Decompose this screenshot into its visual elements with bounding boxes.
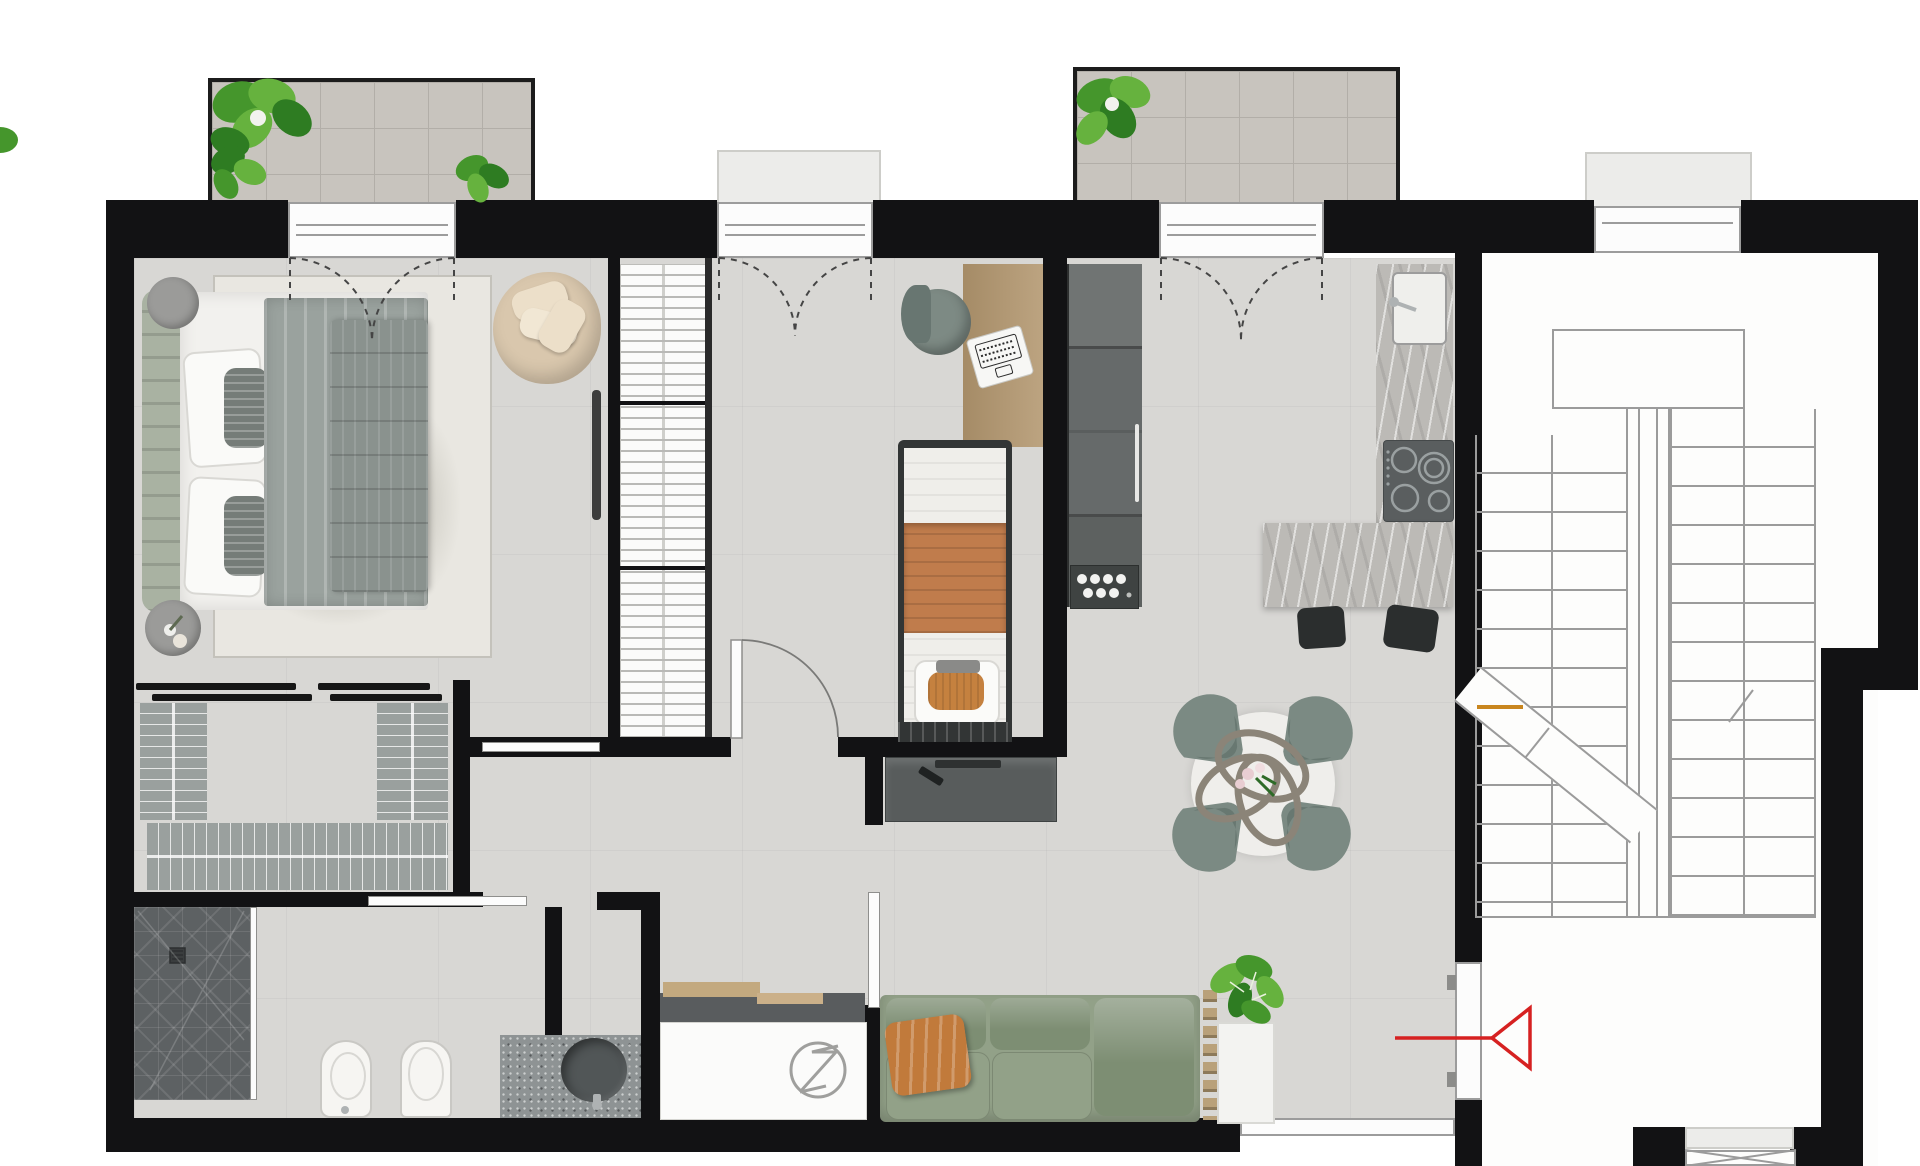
bed-headboard	[142, 290, 182, 612]
kitchen-island	[1263, 523, 1453, 607]
nightstand-top	[147, 277, 199, 329]
sofa-throw-orange	[883, 1013, 973, 1097]
single-bed-blanket	[904, 523, 1006, 633]
balcony-left	[208, 78, 535, 212]
tech-wood-shelf-1	[663, 982, 760, 997]
entrance-door-hinge-bottom	[1447, 1072, 1456, 1087]
stair-stringer-rail-2	[1656, 409, 1670, 918]
closet-rail-right-1	[318, 683, 430, 690]
bottom-wall	[106, 1118, 1240, 1152]
top-wall-seg3	[873, 200, 1159, 258]
bedroom-window-mullion2	[296, 234, 448, 236]
cabinet-handle	[1135, 424, 1139, 502]
bathroom-right-stub	[545, 907, 562, 1035]
vanity-basin	[561, 1038, 627, 1102]
nightstand-bottom	[145, 600, 201, 656]
closet-rail-right-2	[330, 694, 442, 701]
sofa-back-cushion-3	[1094, 998, 1194, 1116]
kitchen-divider-wall	[1043, 258, 1067, 757]
bar-stool-1	[1297, 605, 1347, 649]
shower-glass	[250, 907, 257, 1100]
closet-rail-left-1	[136, 683, 296, 690]
bar-stool-2	[1382, 604, 1439, 654]
kitchen-window-mullion	[1167, 224, 1316, 226]
middle-window-mullion	[725, 224, 865, 226]
entrance-door-hinge-top	[1447, 975, 1456, 990]
sofa-back-cushion-2	[990, 998, 1090, 1050]
boiler-unit	[660, 1022, 867, 1120]
wine-rack-cube	[1070, 565, 1139, 609]
stair-landing-outline	[1552, 329, 1745, 409]
window-platform-stair	[1585, 152, 1752, 212]
shower-tray	[134, 907, 250, 1100]
desk	[963, 264, 1043, 447]
stair-bottom-sill	[1685, 1127, 1794, 1149]
tech-wood-shelf-2	[757, 993, 823, 1004]
wardrobe-hanger-column	[620, 264, 707, 739]
planter-box	[1217, 1022, 1275, 1124]
wardrobe-divider-2	[620, 566, 705, 570]
kitchen-window	[1159, 202, 1324, 258]
wardrobe-divider-1	[620, 401, 705, 405]
closet-hangers-right	[377, 703, 448, 820]
dining-table	[1191, 712, 1335, 856]
stair-step-wall	[1821, 648, 1918, 690]
balcony-right	[1073, 67, 1400, 212]
stair-orange-accent	[1477, 705, 1523, 709]
glass-partition	[868, 892, 880, 1008]
closet-hangers-left	[140, 703, 207, 820]
bedroom-window-mullion	[296, 224, 448, 226]
floor-plan-canvas	[0, 0, 1920, 1166]
middle-window	[717, 202, 873, 258]
kitchen-sink	[1392, 272, 1447, 345]
top-wall-seg2	[456, 200, 717, 258]
kitchen-window-mullion2	[1167, 234, 1316, 236]
bed-accent-pillow-top	[224, 368, 268, 448]
stair-treads-left	[1475, 435, 1628, 918]
single-bed-cushion-orange	[928, 672, 984, 710]
stair-bottom-window-box	[1685, 1150, 1796, 1166]
stair-gap	[1640, 409, 1656, 918]
stair-bottom-seg1	[1633, 1127, 1685, 1166]
bed-accent-pillow-bottom	[224, 496, 268, 576]
bathroom-sliding-door	[368, 896, 527, 906]
kitchen-tall-cabinets	[1067, 264, 1142, 607]
tv-wall-stub	[865, 753, 883, 825]
sofa-seat-cushion-2	[992, 1052, 1092, 1120]
cabinet-mid-tone	[1069, 349, 1142, 514]
bedroom-window	[288, 202, 456, 258]
bedroom-radiator	[592, 390, 601, 520]
stair-window-mullion	[1602, 222, 1733, 224]
closet-rail-left-2	[152, 694, 312, 701]
right-wall-below-door	[1455, 1100, 1482, 1166]
stair-window	[1594, 206, 1741, 253]
toilet	[400, 1040, 452, 1118]
closet-hangers-bottom	[147, 823, 448, 890]
wardrobe-right-edge	[705, 258, 712, 737]
window-platform-middle	[717, 150, 881, 208]
single-bed-headrest	[936, 660, 980, 673]
stair-treads-right	[1670, 409, 1816, 918]
plant-ladder-rack	[1203, 990, 1217, 1120]
tech-room-wall-left	[641, 892, 660, 1122]
stair-right-wall-upper	[1878, 200, 1918, 690]
desk-chair-back	[901, 285, 931, 343]
hall-sliding-door	[482, 742, 600, 752]
bedroom-right-wall	[608, 258, 620, 737]
entrance-door-frame	[1455, 962, 1482, 1100]
stair-right-wall-lower	[1821, 690, 1863, 1166]
single-bed-footboard	[898, 722, 1012, 742]
middle-window-mullion2	[725, 234, 865, 236]
bed-quilt-fold	[330, 320, 428, 592]
stair-bottom-line	[1475, 916, 1816, 918]
cooktop	[1383, 440, 1454, 522]
closet-right-stub	[453, 680, 470, 893]
tv-bar	[935, 760, 1001, 768]
bidet-bowl	[330, 1052, 366, 1100]
left-wall	[106, 200, 134, 1152]
